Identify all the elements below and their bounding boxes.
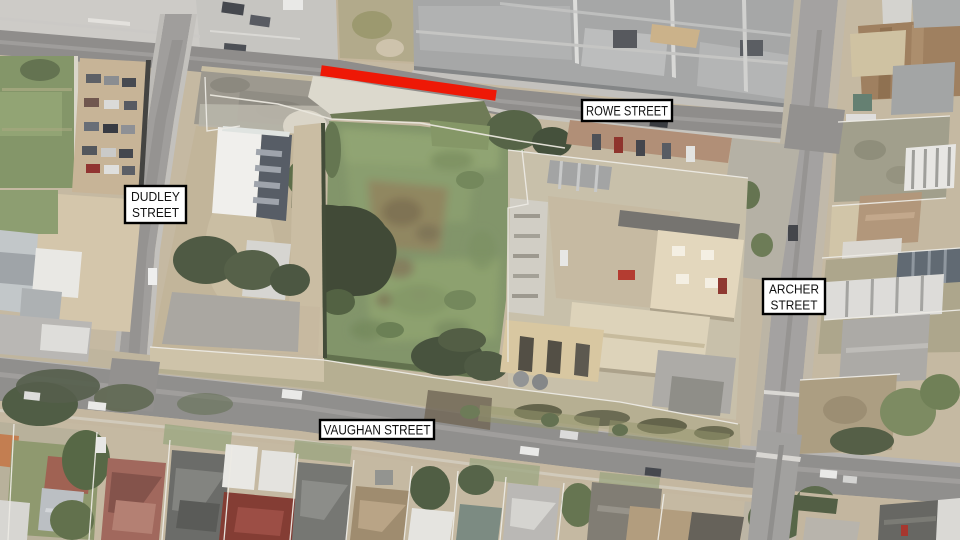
svg-text:DUDLEY: DUDLEY bbox=[131, 189, 180, 204]
svg-text:ARCHER: ARCHER bbox=[769, 282, 819, 297]
svg-text:STREET: STREET bbox=[132, 205, 179, 220]
svg-text:ROWE STREET: ROWE STREET bbox=[586, 103, 668, 119]
svg-text:VAUGHAN STREET: VAUGHAN STREET bbox=[324, 422, 431, 438]
svg-text:STREET: STREET bbox=[771, 298, 818, 313]
